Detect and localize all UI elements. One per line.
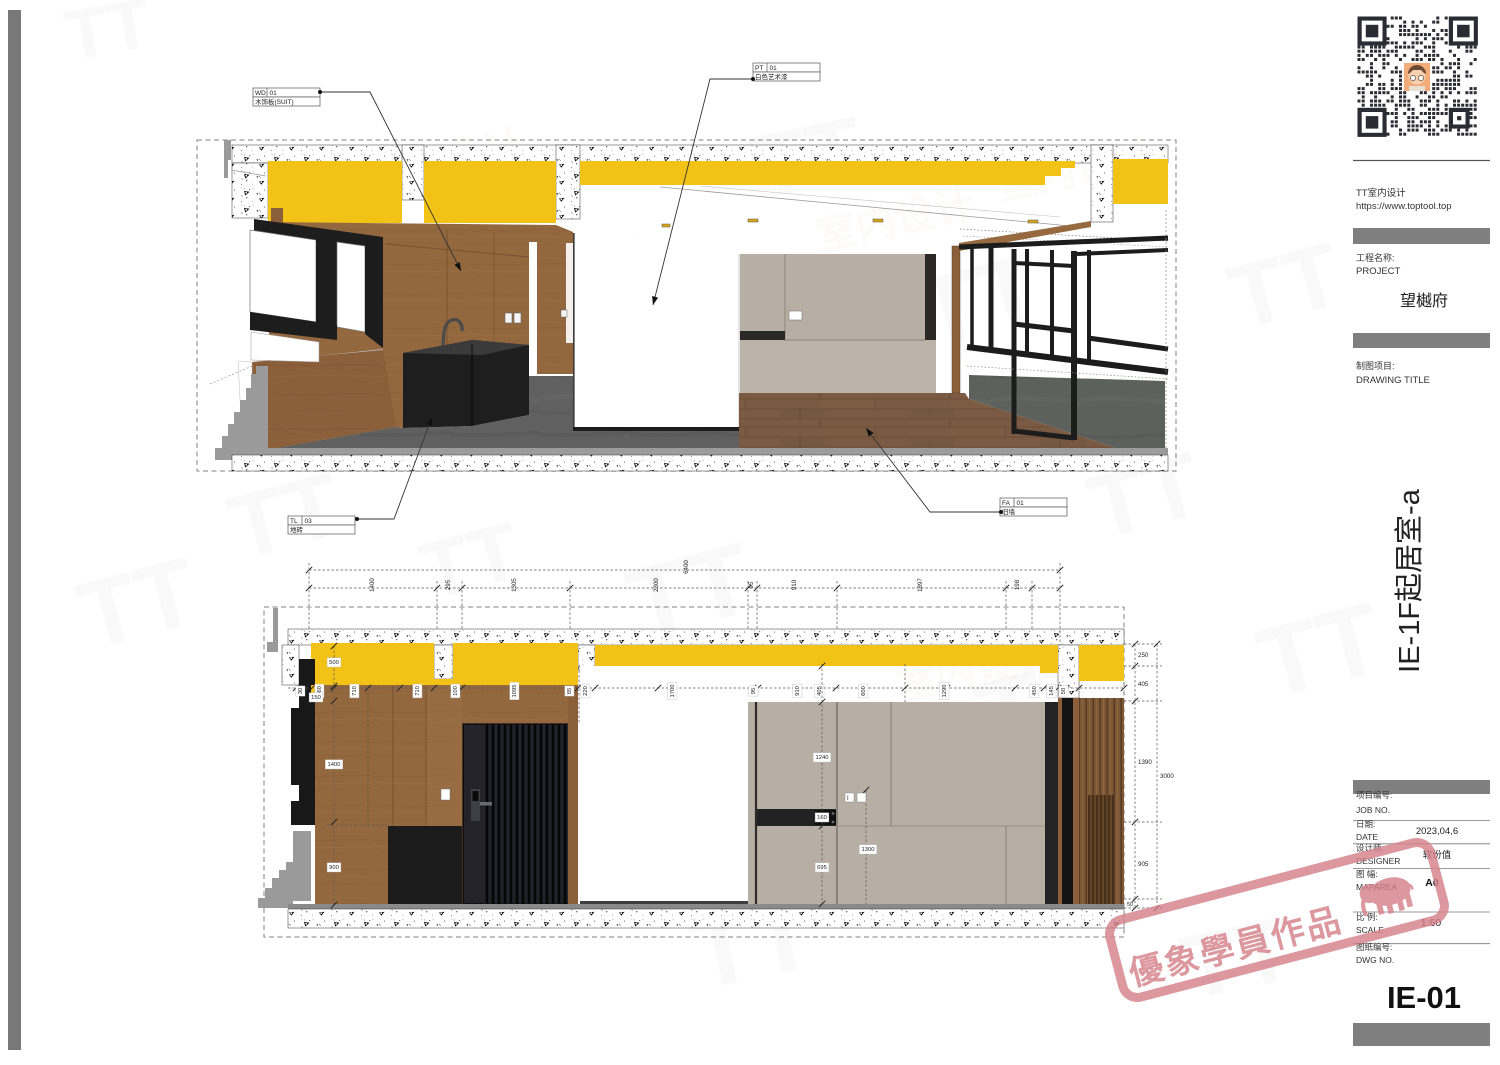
- svg-text:DATE: DATE: [1356, 832, 1378, 842]
- svg-text:DWG NO.: DWG NO.: [1356, 955, 1394, 965]
- svg-text:1305: 1305: [511, 578, 518, 592]
- svg-text:695: 695: [817, 865, 827, 871]
- svg-text:日期:: 日期:: [1356, 819, 1375, 829]
- svg-text:600: 600: [861, 686, 867, 696]
- svg-text:TT室内设计: TT室内设计: [1356, 187, 1406, 199]
- svg-text:905: 905: [1138, 861, 1149, 868]
- svg-text:198: 198: [1014, 579, 1021, 590]
- svg-text:900: 900: [329, 865, 339, 871]
- svg-text:PT: PT: [755, 65, 763, 72]
- svg-text:2300: 2300: [653, 578, 660, 592]
- svg-text:250: 250: [1138, 652, 1149, 659]
- svg-text:1240: 1240: [816, 755, 829, 761]
- svg-text:220: 220: [583, 686, 589, 696]
- svg-text:710: 710: [415, 686, 421, 696]
- svg-text:50: 50: [1061, 688, 1067, 694]
- svg-text:1897: 1897: [917, 578, 924, 592]
- svg-text:https://www.toptool.top: https://www.toptool.top: [1356, 201, 1452, 212]
- svg-text:TL: TL: [290, 518, 298, 525]
- svg-text:FA: FA: [1002, 500, 1011, 507]
- svg-text:150: 150: [311, 695, 321, 701]
- svg-text:1400: 1400: [328, 762, 341, 768]
- svg-text:95: 95: [751, 688, 757, 694]
- svg-text:WD: WD: [255, 90, 266, 97]
- svg-text:地砖: 地砖: [290, 525, 304, 534]
- svg-text:145: 145: [1049, 686, 1055, 696]
- svg-text:旧墙: 旧墙: [1002, 507, 1016, 516]
- svg-text:85: 85: [567, 688, 573, 694]
- svg-text:DRAWING TITLE: DRAWING TITLE: [1356, 375, 1430, 386]
- svg-text:2023,04,6: 2023,04,6: [1416, 826, 1458, 837]
- svg-text:710: 710: [352, 686, 358, 696]
- svg-text:1290: 1290: [942, 685, 948, 698]
- svg-text:03: 03: [305, 518, 313, 525]
- svg-text:01: 01: [770, 65, 778, 72]
- svg-text:95: 95: [748, 581, 755, 588]
- svg-text:IE-1F起居室-a: IE-1F起居室-a: [1393, 488, 1426, 673]
- svg-text:500: 500: [329, 660, 339, 666]
- svg-text:1390: 1390: [1138, 759, 1152, 766]
- svg-text:01: 01: [1017, 500, 1025, 507]
- svg-text:望樾府: 望樾府: [1400, 291, 1448, 310]
- svg-text:01: 01: [270, 90, 278, 97]
- svg-text:160: 160: [817, 815, 827, 821]
- svg-text:木饰板(SUIT): 木饰板(SUIT): [255, 97, 294, 106]
- svg-text:6400: 6400: [683, 560, 690, 574]
- svg-text:50: 50: [1127, 902, 1133, 908]
- svg-text:1400: 1400: [369, 578, 376, 592]
- svg-text:项目编号:: 项目编号:: [1356, 790, 1392, 800]
- svg-text:IE-01: IE-01: [1387, 980, 1461, 1015]
- svg-text:30: 30: [298, 688, 304, 694]
- svg-text:PROJECT: PROJECT: [1356, 266, 1401, 277]
- svg-text:100: 100: [453, 686, 459, 696]
- svg-text:1300: 1300: [862, 847, 875, 853]
- svg-text:制图项目:: 制图项目:: [1356, 360, 1395, 371]
- svg-text:3000: 3000: [1160, 773, 1174, 780]
- svg-text:450: 450: [1032, 686, 1038, 696]
- svg-text:白色艺术漆: 白色艺术漆: [755, 72, 788, 81]
- svg-text:JOB NO.: JOB NO.: [1356, 805, 1390, 815]
- svg-text:1700: 1700: [670, 685, 676, 698]
- svg-text:910: 910: [791, 579, 798, 590]
- svg-text:295: 295: [445, 579, 452, 590]
- svg-text:1095: 1095: [512, 685, 518, 698]
- svg-text:图 幅:: 图 幅:: [1356, 869, 1378, 879]
- svg-text:405: 405: [1138, 681, 1149, 688]
- svg-text:910: 910: [795, 686, 801, 696]
- svg-text:工程名称:: 工程名称:: [1356, 252, 1395, 263]
